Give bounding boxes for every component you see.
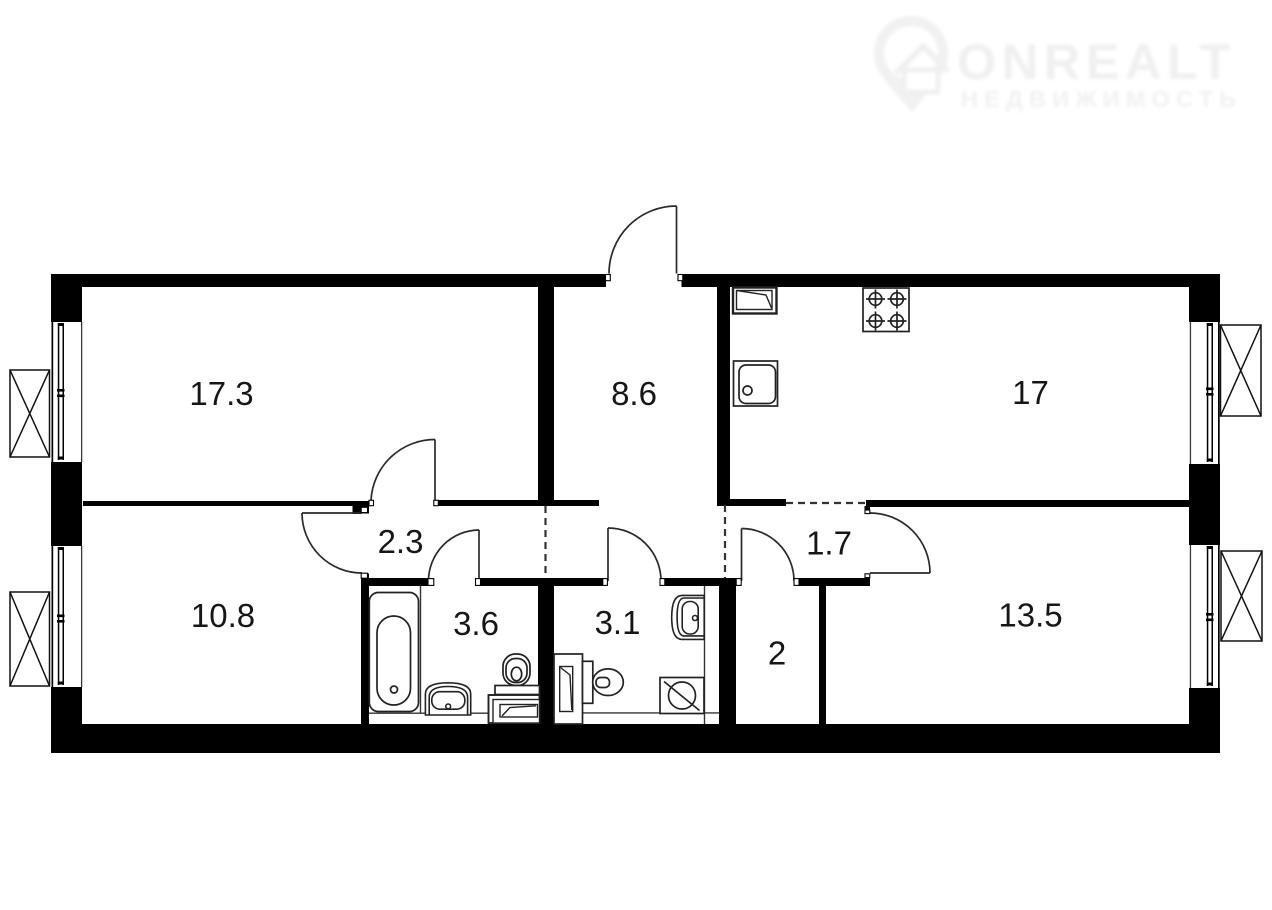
- svg-text:13.5: 13.5: [998, 597, 1062, 634]
- svg-text:10.8: 10.8: [191, 597, 255, 634]
- svg-text:3.1: 3.1: [595, 604, 641, 641]
- svg-text:2: 2: [768, 635, 786, 672]
- svg-text:8.6: 8.6: [611, 375, 657, 412]
- svg-text:17: 17: [1012, 374, 1049, 411]
- svg-text:2.3: 2.3: [378, 523, 424, 560]
- svg-text:17.3: 17.3: [189, 375, 253, 412]
- svg-text:3.6: 3.6: [453, 605, 499, 642]
- svg-text:НЕДВИЖИМОСТЬ: НЕДВИЖИМОСТЬ: [961, 86, 1242, 112]
- svg-text:ONREALT: ONREALT: [957, 33, 1236, 90]
- svg-text:1.7: 1.7: [806, 525, 852, 562]
